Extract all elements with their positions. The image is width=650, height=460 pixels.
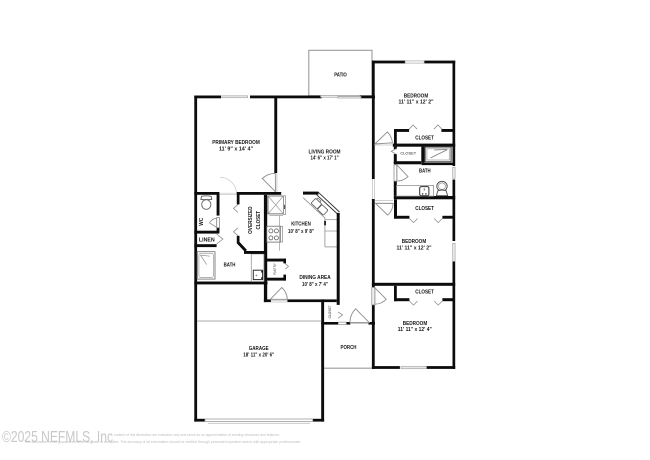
svg-text:BATH: BATH	[224, 262, 236, 268]
svg-text:10' 8" x 7' 4": 10' 8" x 7' 4"	[302, 282, 328, 288]
svg-text:PORCH: PORCH	[341, 345, 357, 351]
svg-text:LINEN: LINEN	[199, 238, 215, 244]
svg-text:11' 11" x 12' 2": 11' 11" x 12' 2"	[396, 246, 432, 252]
svg-text:11' 11" x 12' 4": 11' 11" x 12' 4"	[398, 327, 432, 333]
svg-text:WC: WC	[199, 217, 205, 225]
svg-text:CLOSET: CLOSET	[415, 290, 434, 296]
svg-text:DINING AREA: DINING AREA	[299, 275, 330, 281]
svg-text:CLOSET: CLOSET	[328, 305, 332, 319]
svg-text:BEDROOM: BEDROOM	[402, 239, 427, 245]
svg-text:PRIMARY BEDROOM: PRIMARY BEDROOM	[212, 140, 260, 146]
svg-text:GARAGE: GARAGE	[249, 346, 269, 352]
svg-text:+: +	[255, 273, 258, 278]
svg-text:11' 9" x 14' 4": 11' 9" x 14' 4"	[219, 146, 253, 152]
svg-text:This illustration is not guara: This illustration is not guaranteed to b…	[24, 440, 301, 444]
svg-text:18' 11" x 20' 6": 18' 11" x 20' 6"	[243, 353, 274, 359]
svg-text:CLOSET: CLOSET	[400, 151, 417, 156]
svg-text:BATH: BATH	[419, 169, 431, 175]
svg-text:LIVING ROOM: LIVING ROOM	[308, 149, 340, 155]
svg-text:11' 11" x 12' 2": 11' 11" x 12' 2"	[398, 100, 434, 106]
svg-text:PATIO: PATIO	[334, 72, 347, 78]
svg-text:content of this illustration a: content of this illustration are indicat…	[114, 433, 280, 437]
svg-text:10' 8" x 9' 8": 10' 8" x 9' 8"	[288, 229, 314, 235]
svg-text:CLOSET: CLOSET	[415, 206, 434, 212]
svg-text:KITCHEN: KITCHEN	[291, 222, 311, 228]
svg-text:PANTRY: PANTRY	[273, 263, 277, 275]
svg-text:OVERSIZED: OVERSIZED	[248, 206, 254, 234]
svg-text:CLOSET: CLOSET	[415, 135, 434, 141]
svg-text:14' 6" x 17' 1": 14' 6" x 17' 1"	[311, 156, 340, 162]
svg-text:BEDROOM: BEDROOM	[404, 94, 429, 100]
svg-text:CLOSET: CLOSET	[256, 211, 262, 230]
